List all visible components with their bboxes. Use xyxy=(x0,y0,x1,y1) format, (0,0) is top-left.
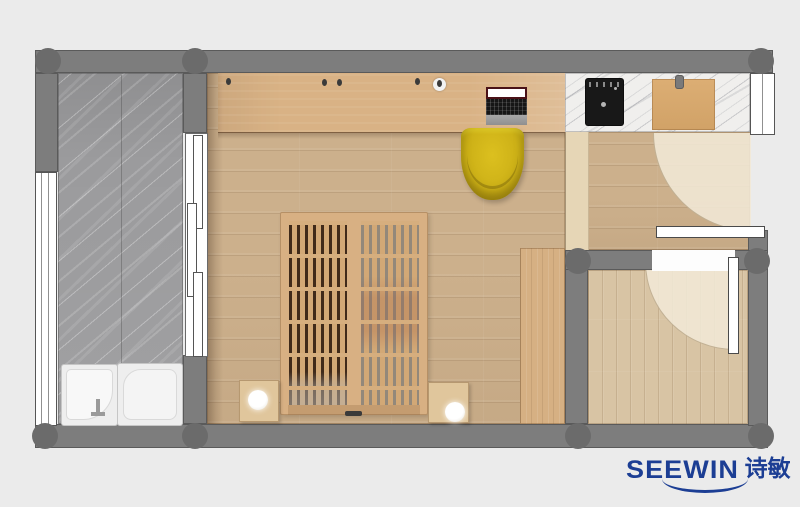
wall-left-upper xyxy=(35,73,58,172)
tub-faucet-spout xyxy=(91,412,105,416)
wall-column xyxy=(182,48,208,74)
wall-column xyxy=(748,423,774,449)
floor-plan: SEEWIN诗敏 xyxy=(0,0,800,507)
laptop-palmrest xyxy=(486,115,527,125)
wall-bathroom-partition-upper xyxy=(183,73,207,133)
cabinet-knob xyxy=(322,79,327,86)
bathroom-tile-seam xyxy=(121,75,122,363)
slatted-bed xyxy=(280,212,428,415)
window-right xyxy=(750,73,775,135)
hall-threshold-strip xyxy=(565,132,589,250)
bed-slats-right xyxy=(361,221,419,405)
entry-door-leaf xyxy=(656,226,765,238)
table-lamp-right xyxy=(445,402,465,422)
sliding-door-panel xyxy=(193,272,203,357)
window-left-glass-line xyxy=(41,173,42,425)
cabinet-knob xyxy=(437,80,442,87)
wall-column xyxy=(565,248,591,274)
bed-foot-handle xyxy=(345,411,362,416)
cabinet-knob xyxy=(226,78,231,85)
wall-column xyxy=(32,423,58,449)
shower-tray xyxy=(117,363,183,426)
cooktop xyxy=(586,79,623,125)
walk-in-tub xyxy=(61,364,118,426)
wall-bathroom-partition-lower xyxy=(183,355,207,424)
bed-slats-left xyxy=(289,221,347,405)
shower-tray-inner xyxy=(123,369,177,420)
cooktop-dot xyxy=(614,87,617,90)
main-room-left-shadow xyxy=(207,73,223,424)
side-room-door-opening xyxy=(652,250,735,271)
wall-top xyxy=(35,50,773,73)
window-left xyxy=(35,172,57,426)
brand-logo-swoosh xyxy=(662,479,748,493)
window-left-glass-line xyxy=(48,173,49,425)
tub-basin xyxy=(66,369,113,420)
cabinet-knob xyxy=(415,78,420,85)
side-room-door-leaf xyxy=(728,257,739,354)
brand-logo: SEEWIN诗敏 xyxy=(626,449,800,495)
wall-column xyxy=(748,48,774,74)
cabinet-knob xyxy=(337,79,342,86)
cooktop-dot xyxy=(601,102,606,107)
wall-column xyxy=(35,48,61,74)
window-right-glass-line xyxy=(762,74,763,134)
side-cabinet xyxy=(520,248,565,424)
wall-column xyxy=(744,248,770,274)
cutting-board-handle xyxy=(675,75,684,89)
wall-column xyxy=(565,423,591,449)
wall-side-room-left xyxy=(565,250,588,424)
table-lamp-left xyxy=(248,390,268,410)
wall-column xyxy=(182,423,208,449)
brand-logo-chinese: 诗敏 xyxy=(745,456,791,482)
wall-bottom xyxy=(35,424,768,448)
laptop-screen xyxy=(486,87,527,99)
laptop-keyboard xyxy=(486,99,527,115)
